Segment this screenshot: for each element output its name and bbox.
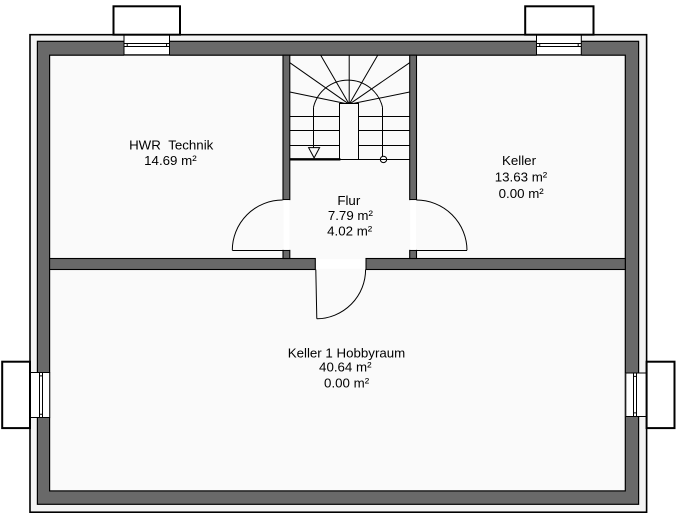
svg-text:Keller: Keller <box>502 153 537 168</box>
svg-text:Keller 1 Hobbyraum: Keller 1 Hobbyraum <box>288 345 406 360</box>
svg-text:40.64 m²: 40.64 m² <box>319 360 372 375</box>
svg-text:14.69 m²: 14.69 m² <box>144 153 197 168</box>
svg-text:0.00 m²: 0.00 m² <box>324 375 370 390</box>
svg-text:4.02 m²: 4.02 m² <box>327 224 373 239</box>
svg-text:Flur: Flur <box>337 193 360 208</box>
svg-text:7.79 m²: 7.79 m² <box>328 208 374 223</box>
svg-text:0.00 m²: 0.00 m² <box>499 186 545 201</box>
svg-text:13.63 m²: 13.63 m² <box>495 170 548 185</box>
svg-text:HWR Technik: HWR Technik <box>129 137 214 152</box>
